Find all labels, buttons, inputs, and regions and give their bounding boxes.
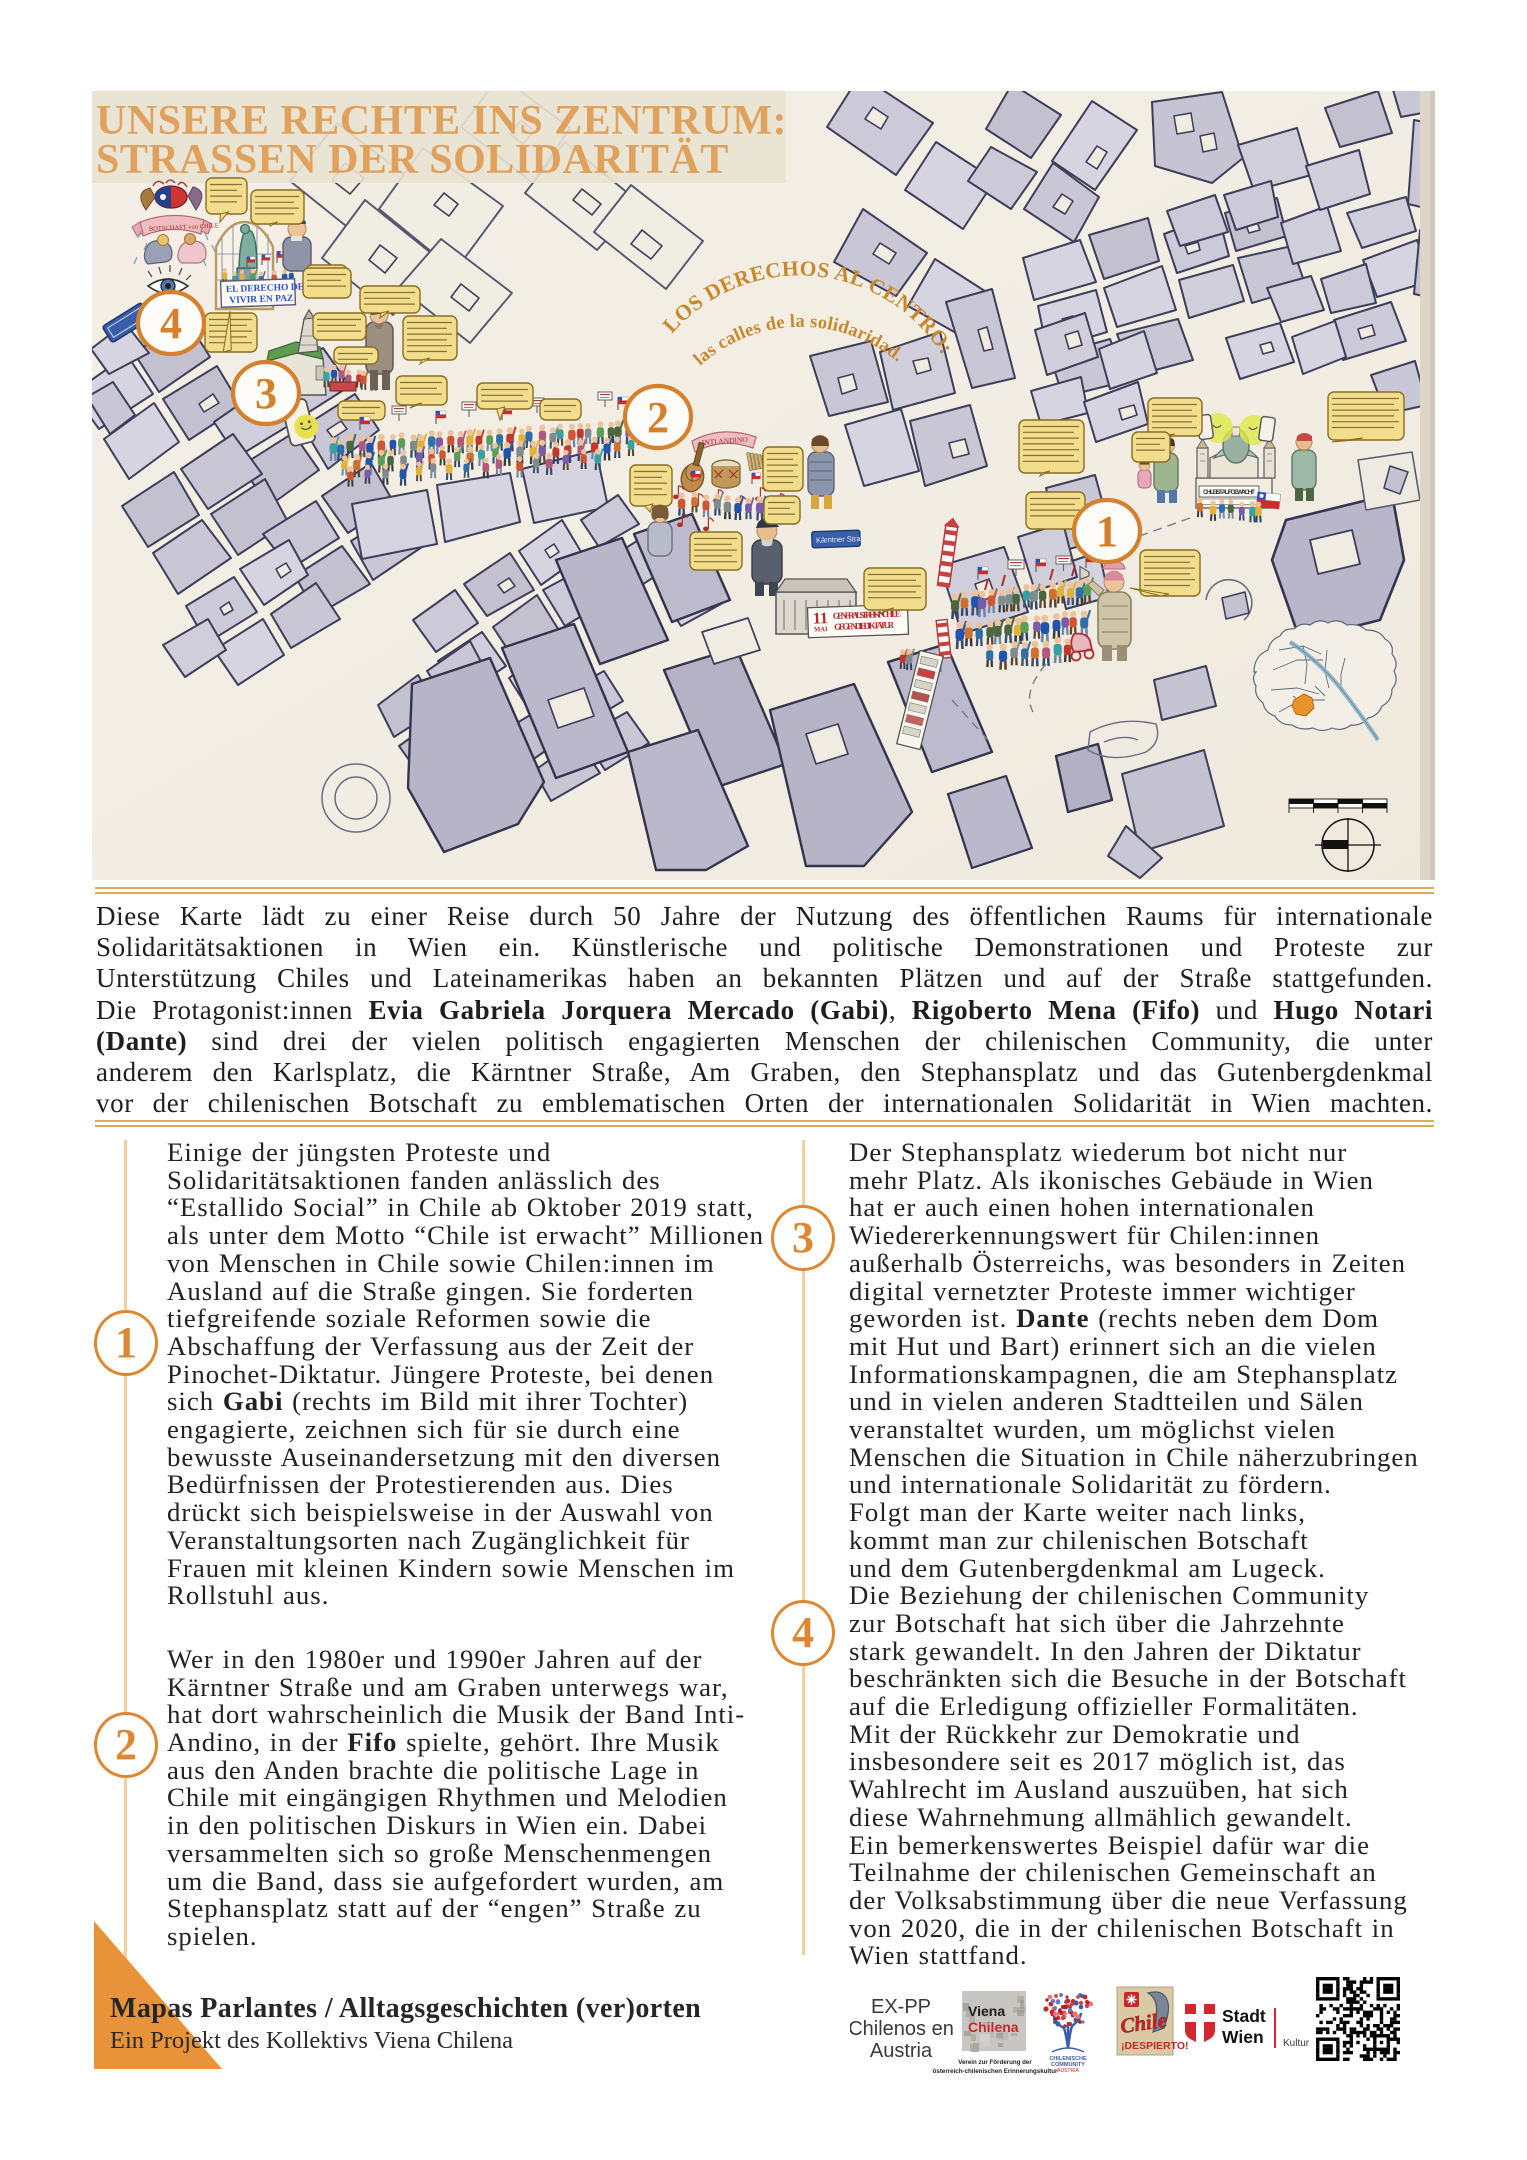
svg-text:MAI: MAI — [814, 626, 828, 633]
svg-text:Verein zur Förderung der: Verein zur Förderung der — [958, 2059, 1032, 2066]
svg-text:GEGEN DIE DIKTATUR: GEGEN DIE DIKTATUR — [834, 620, 895, 632]
svg-text:EX-PP: EX-PP — [871, 1996, 931, 2018]
svg-text:STRASSEN DER SOLIDARITÄT: STRASSEN DER SOLIDARITÄT — [96, 137, 729, 183]
svg-text:11: 11 — [813, 610, 829, 628]
svg-text:Wien: Wien — [1222, 2027, 1264, 2047]
svg-text:Chilena: Chilena — [968, 2019, 1019, 2035]
svg-text:AUSTRIA: AUSTRIA — [1057, 2068, 1079, 2074]
svg-text:Viena: Viena — [968, 2003, 1005, 2019]
svg-text:4: 4 — [160, 299, 182, 348]
svg-text:Austria: Austria — [870, 2040, 933, 2062]
svg-text:2: 2 — [647, 393, 669, 442]
svg-text:1: 1 — [1096, 507, 1118, 556]
svg-text:¡DESPIERTO!: ¡DESPIERTO! — [1121, 2040, 1188, 2052]
svg-text:österreich-chilenischen Erinne: österreich-chilenischen Erinnerungskultu… — [933, 2068, 1058, 2075]
svg-text:Kultur: Kultur — [1283, 2038, 1310, 2049]
svg-text:Kärntner Straße: Kärntner Straße — [816, 534, 870, 545]
svg-text:3: 3 — [255, 369, 277, 418]
svg-text:Chilenos en: Chilenos en — [850, 2018, 954, 2040]
svg-text:CHILE IST AUFGEWACHT: CHILE IST AUFGEWACHT — [1203, 489, 1255, 496]
svg-text:Stadt: Stadt — [1222, 2006, 1266, 2026]
